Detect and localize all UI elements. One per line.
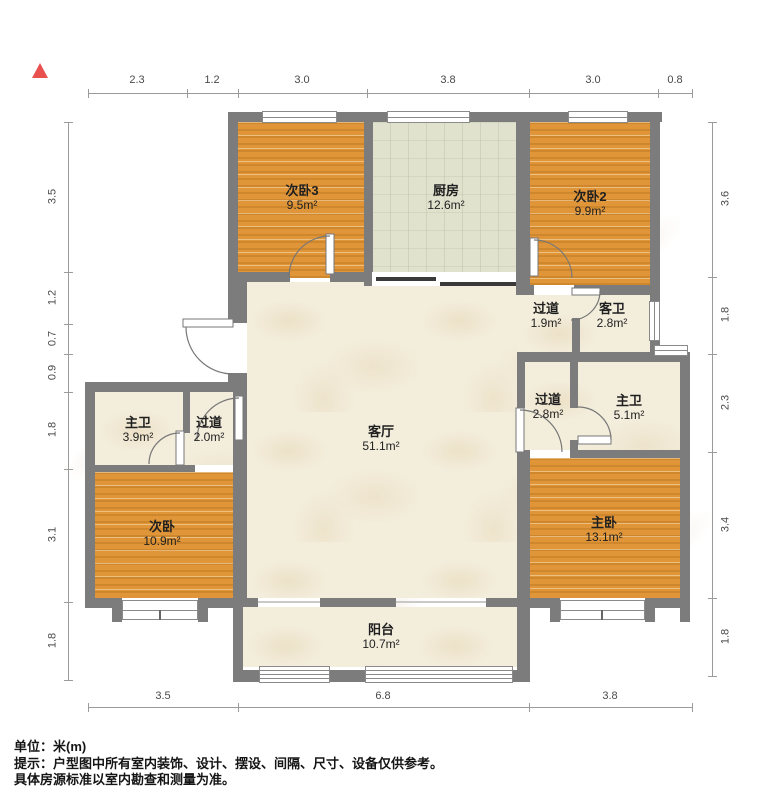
dim-tick [708,122,717,123]
wall [516,112,530,295]
dim-line-right [712,122,713,676]
room-name: 厨房 [427,183,464,198]
dim-tick [529,89,530,98]
wall [516,285,534,295]
dim-label: 3.0 [578,74,608,87]
dim-tick [367,89,368,98]
room-label-bedroom: 次卧 10.9m² [143,519,180,548]
wall [517,450,530,598]
window-guestbath [649,301,660,341]
window-kitchen [387,111,470,123]
wall [228,282,247,323]
room-area: 51.1m² [362,439,399,453]
room-area: 9.9m² [573,204,606,218]
balcony-opening-threshold [396,601,486,603]
dim-label: 3.5 [47,182,60,212]
dim-tick [64,392,73,393]
room-label-hallway-19: 过道 1.9m² [531,301,562,330]
wall [572,318,580,352]
room-label-kitchen: 厨房 12.6m² [427,183,464,212]
dim-label: 1.8 [47,415,60,445]
dim-label: 1.8 [720,300,733,330]
room-area: 10.7m² [362,637,399,651]
dim-label: 3.1 [47,520,60,550]
room-name: 过道 [533,392,564,407]
room-label-balcony: 阳台 10.7m² [362,622,399,651]
sliding-door-panel [376,277,436,281]
wall [85,382,238,392]
dim-tick [64,469,73,470]
dim-label: 2.3 [122,74,152,87]
room-name: 次卧2 [573,189,606,204]
dim-tick [708,676,717,677]
room-area: 10.9m² [143,534,180,548]
dim-label: 6.8 [368,690,398,703]
wall [574,285,660,295]
dim-label: 3.0 [287,74,317,87]
room-label-masterbed: 主卧 13.1m² [585,515,622,544]
wall [85,465,195,472]
dim-label: 3.4 [720,510,733,540]
wall [233,392,247,598]
dim-tick [88,703,89,712]
room-area: 5.1m² [614,408,645,422]
room-label-bedroom2: 次卧2 9.9m² [573,189,606,218]
dim-line-bottom [88,707,692,708]
dim-line-left [68,122,69,680]
room-label-livingroom: 客厅 51.1m² [362,424,399,453]
room-area: 12.6m² [427,198,464,212]
dim-tick [708,452,717,453]
dim-tick [64,680,73,681]
wall [233,598,243,680]
room-name: 过道 [194,415,225,430]
balcony-opening-threshold [258,601,320,603]
window-balcony-right [365,666,513,683]
room-name: 主卧 [585,515,622,530]
dim-label: 0.8 [660,74,690,87]
dim-tick [658,89,659,98]
room-area: 2.8m² [533,407,564,421]
wall [517,598,530,680]
window-balcony-left [259,666,330,683]
dim-tick [692,89,693,98]
dim-label: 1.2 [197,74,227,87]
dim-label: 3.5 [148,690,178,703]
dim-tick [64,272,73,273]
wall [320,598,396,607]
dim-label: 1.2 [47,283,60,313]
dim-label: 1.8 [720,622,733,652]
footer-disclaimer-2: 具体房源标准以室内勘查和测量为准。 [14,769,235,788]
room-name: 阳台 [362,622,399,637]
wall [85,382,95,608]
dim-tick [64,602,73,603]
dim-line-top [88,93,692,94]
window-mullion [601,610,603,620]
dim-tick [692,703,693,712]
room-label-hallway-28: 过道 2.8m² [533,392,564,421]
room-label-masterbath: 主卫 5.1m² [614,393,645,422]
wall [530,598,550,608]
dim-tick [238,89,239,98]
wall [88,598,112,608]
dim-label: 2.3 [720,388,733,418]
wall [650,112,660,301]
dim-tick [238,703,239,712]
window-bedroom2 [568,111,628,123]
wall [330,272,372,282]
dim-label: 3.8 [433,74,463,87]
room-name: 主卫 [614,393,645,408]
room-area: 2.8m² [597,316,628,330]
wall [364,112,373,286]
wall [517,362,525,408]
entry-door-leaf [183,319,233,327]
north-arrow-icon [32,63,48,78]
dim-tick [708,598,717,599]
dim-label: 0.7 [47,324,60,354]
wall [198,598,208,622]
room-name: 主卫 [123,415,154,430]
room-label-guestbath: 客卫 2.8m² [597,301,628,330]
wall [550,598,560,622]
room-area: 13.1m² [585,530,622,544]
room-name: 次卧3 [285,183,318,198]
room-label-bedroom3: 次卧3 9.5m² [285,183,318,212]
window-bedroom3 [262,111,337,123]
room-area: 3.9m² [123,430,154,444]
wall [570,440,578,450]
wall [570,362,578,408]
dim-tick [708,277,717,278]
room-area: 9.5m² [285,198,318,212]
wall [228,112,238,282]
wall [486,598,517,607]
room-name: 过道 [531,301,562,316]
dim-tick [64,122,73,123]
dim-label: 0.9 [47,358,60,388]
wall [243,598,258,607]
room-name: 次卧 [143,519,180,534]
wall [570,450,690,458]
dim-tick [708,354,717,355]
entry-door-swing [186,327,233,374]
sliding-door-panel [440,282,516,286]
room-area: 2.0m² [194,430,225,444]
dim-label: 1.8 [47,626,60,656]
floor-plan-canvas: 次卧3 9.5m² 厨房 12.6m² 次卧2 9.9m² 过道 1.9m² 客… [0,0,770,800]
room-name: 客厅 [362,424,399,439]
dim-label: 3.6 [720,184,733,214]
wall [208,598,233,608]
room-label-leftbath: 主卫 3.9m² [123,415,154,444]
wall [183,392,190,433]
dim-tick [64,354,73,355]
dim-tick [187,89,188,98]
dim-tick [529,703,530,712]
dim-tick [64,324,73,325]
dim-tick [88,89,89,98]
window-right-jog [654,345,688,356]
room-label-lefthall: 过道 2.0m² [194,415,225,444]
wall [228,272,290,282]
wall [645,598,655,622]
dim-label: 3.8 [595,690,625,703]
room-area: 1.9m² [531,316,562,330]
wall [680,352,690,622]
window-mullion [159,610,161,620]
wall [112,598,122,622]
room-name: 客卫 [597,301,628,316]
